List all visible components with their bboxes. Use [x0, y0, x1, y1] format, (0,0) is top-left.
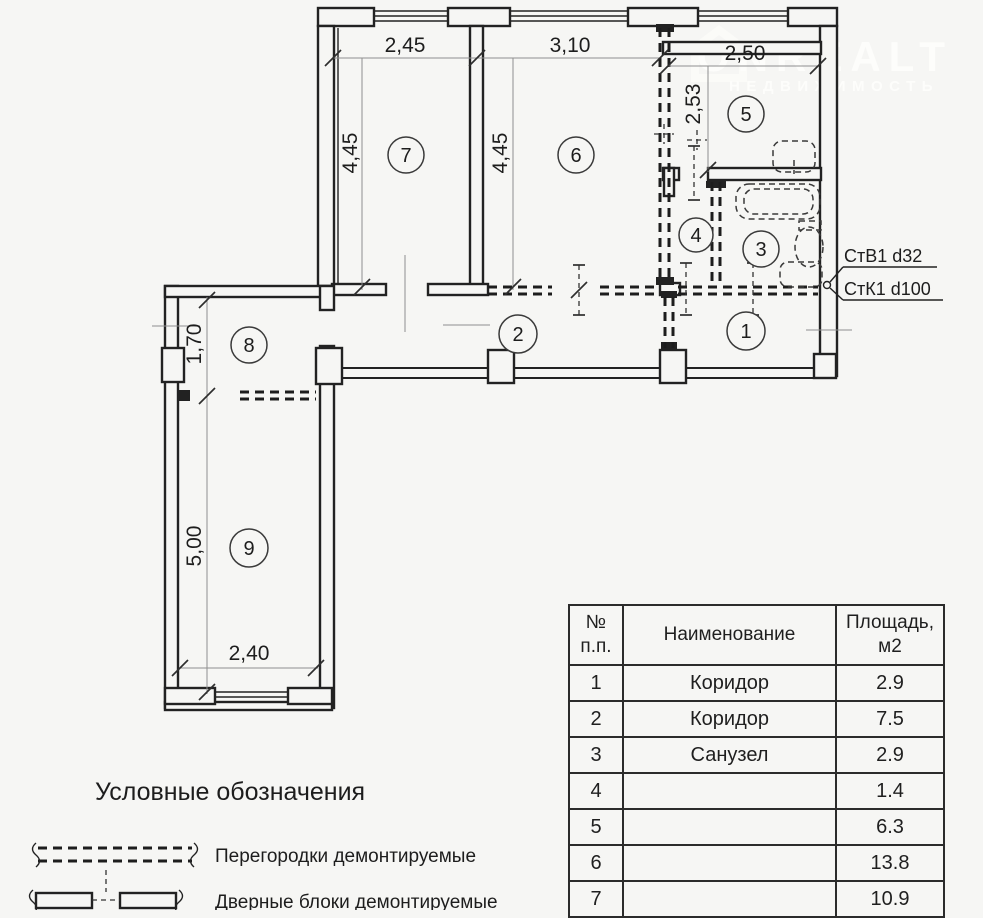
- table-row: 41.4: [569, 773, 944, 809]
- area-table-body: 1Коридор2.92Коридор7.53Санузел2.941.456.…: [569, 665, 944, 917]
- area-table: № п.п. Наименование Площадь, м2 1Коридор…: [568, 604, 945, 918]
- table-cell: 6: [569, 845, 623, 881]
- table-cell: 3: [569, 737, 623, 773]
- fixtures-group: [736, 141, 823, 287]
- table-cell: 6.3: [836, 809, 944, 845]
- dim-label-310: 3,10: [550, 34, 591, 57]
- dim-label-250: 2,50: [725, 42, 766, 65]
- table-cell: Санузел: [623, 737, 836, 773]
- table-cell: [623, 881, 836, 917]
- dim-label-240: 2,40: [229, 642, 270, 665]
- dim-label-170: 1,70: [183, 324, 206, 365]
- table-row: 2Коридор7.5: [569, 701, 944, 737]
- table-cell: [623, 773, 836, 809]
- dim-label-445b: 4,45: [489, 133, 512, 174]
- room-number-3: 3: [755, 239, 766, 261]
- legend-group: Условные обозначения Перегородки демонти…: [30, 778, 498, 910]
- room-number-7: 7: [400, 145, 411, 167]
- riser-label-stk: СтК1 d100: [844, 279, 931, 299]
- table-cell: 7.5: [836, 701, 944, 737]
- table-cell: 2.9: [836, 665, 944, 701]
- dim-label-253: 2,53: [682, 84, 705, 125]
- legend-title: Условные обозначения: [95, 778, 365, 806]
- riser-label-stv: СтВ1 d32: [844, 246, 922, 266]
- legend-item-doors: Дверные блоки демонтируемые: [215, 892, 498, 910]
- table-cell: Коридор: [623, 665, 836, 701]
- table-cell: [623, 809, 836, 845]
- dim-label-245: 2,45: [385, 34, 426, 57]
- legend-symbol-doorblock: [30, 870, 183, 910]
- table-row: 710.9: [569, 881, 944, 917]
- col-header-number: № п.п.: [569, 605, 623, 665]
- riser-annotation-group: СтВ1 d32 СтК1 d100: [824, 246, 944, 300]
- table-cell: 10.9: [836, 881, 944, 917]
- table-row: 3Санузел2.9: [569, 737, 944, 773]
- dim-label-445a: 4,45: [339, 133, 362, 174]
- table-cell: 1.4: [836, 773, 944, 809]
- table-row: 613.8: [569, 845, 944, 881]
- table-cell: 13.8: [836, 845, 944, 881]
- room-number-9: 9: [243, 538, 254, 560]
- dim-label-500: 5,00: [183, 526, 206, 567]
- table-cell: 2.9: [836, 737, 944, 773]
- table-cell: 5: [569, 809, 623, 845]
- table-row: 1Коридор2.9: [569, 665, 944, 701]
- toilet-icon: [795, 227, 823, 267]
- col-header-area: Площадь, м2: [836, 605, 944, 665]
- table-row: 56.3: [569, 809, 944, 845]
- legend-symbol-partition: [33, 843, 198, 867]
- table-cell: 4: [569, 773, 623, 809]
- legend-item-partitions: Перегородки демонтируемые: [215, 846, 476, 867]
- room-number-2: 2: [512, 324, 523, 346]
- table-cell: 2: [569, 701, 623, 737]
- table-cell: Коридор: [623, 701, 836, 737]
- table-cell: 1: [569, 665, 623, 701]
- room-number-5: 5: [740, 104, 751, 126]
- table-header-row: № п.п. Наименование Площадь, м2: [569, 605, 944, 665]
- room-number-1: 1: [740, 321, 751, 343]
- col-header-name: Наименование: [623, 605, 836, 665]
- room-number-4: 4: [690, 225, 701, 247]
- table-cell: 7: [569, 881, 623, 917]
- washbasin-icon: [780, 262, 822, 287]
- table-cell: [623, 845, 836, 881]
- room-number-8: 8: [243, 335, 254, 357]
- room-number-6: 6: [570, 145, 581, 167]
